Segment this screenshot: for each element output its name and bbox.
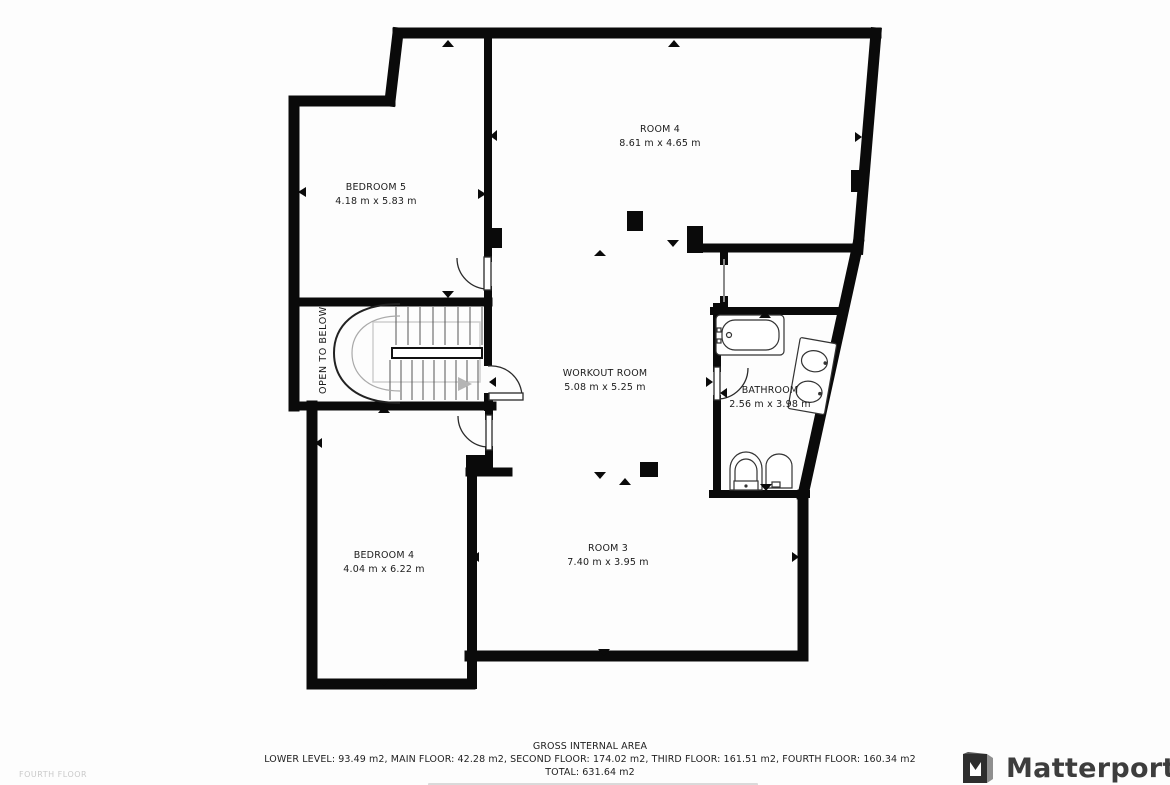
door-bedroom-5: [457, 257, 491, 290]
room-dims: 4.04 m x 6.22 m: [304, 563, 464, 577]
doors: [457, 257, 748, 450]
gia-total: TOTAL: 631.64 m2: [200, 766, 980, 779]
pillars: [466, 170, 864, 477]
stair-treads-lower: [390, 360, 478, 400]
matterport-logo-text: Matterport: [1006, 752, 1170, 785]
floorplan-canvas: OPEN TO BELOW: [0, 0, 1170, 785]
room-label-room-4: ROOM 4 8.61 m x 4.65 m: [560, 123, 760, 150]
matterport-logo-icon: [960, 752, 996, 785]
bidet-icon: [766, 454, 792, 488]
toilet-icon: [730, 452, 762, 490]
gia-title: GROSS INTERNAL AREA: [200, 740, 980, 753]
room-label-room-3: ROOM 3 7.40 m x 3.95 m: [508, 542, 708, 569]
room-dims: 5.08 m x 5.25 m: [505, 381, 705, 395]
bathtub-icon: [716, 315, 784, 355]
stairs: OPEN TO BELOW: [318, 304, 482, 403]
floor-label: FOURTH FLOOR: [19, 770, 87, 779]
room-label-workout-room: WORKOUT ROOM 5.08 m x 5.25 m: [505, 367, 705, 394]
room-dims: 4.18 m x 5.83 m: [296, 195, 456, 209]
matterport-logo: Matterport: [960, 752, 1170, 785]
room-label-bathroom: BATHROOM 2.56 m x 3.98 m: [695, 384, 845, 411]
stair-direction-arrow: [458, 377, 472, 391]
gross-internal-area-block: GROSS INTERNAL AREA LOWER LEVEL: 93.49 m…: [200, 740, 980, 779]
room-name: ROOM 3: [508, 542, 708, 556]
room-name: BATHROOM: [695, 384, 845, 398]
room-label-bedroom-4: BEDROOM 4 4.04 m x 6.22 m: [304, 549, 464, 576]
open-to-below-label: OPEN TO BELOW: [318, 306, 329, 394]
stair-treads-upper: [396, 307, 482, 345]
room-name: WORKOUT ROOM: [505, 367, 705, 381]
gia-breakdown: LOWER LEVEL: 93.49 m2, MAIN FLOOR: 42.28…: [200, 753, 980, 766]
room-dims: 2.56 m x 3.98 m: [695, 398, 845, 412]
door-bedroom-4: [458, 415, 492, 450]
stair-rail: [392, 348, 482, 358]
room-label-bedroom-5: BEDROOM 5 4.18 m x 5.83 m: [296, 181, 456, 208]
room-name: BEDROOM 5: [296, 181, 456, 195]
room-dims: 7.40 m x 3.95 m: [508, 556, 708, 570]
room-name: BEDROOM 4: [304, 549, 464, 563]
room-name: ROOM 4: [560, 123, 760, 137]
room-dims: 8.61 m x 4.65 m: [560, 137, 760, 151]
